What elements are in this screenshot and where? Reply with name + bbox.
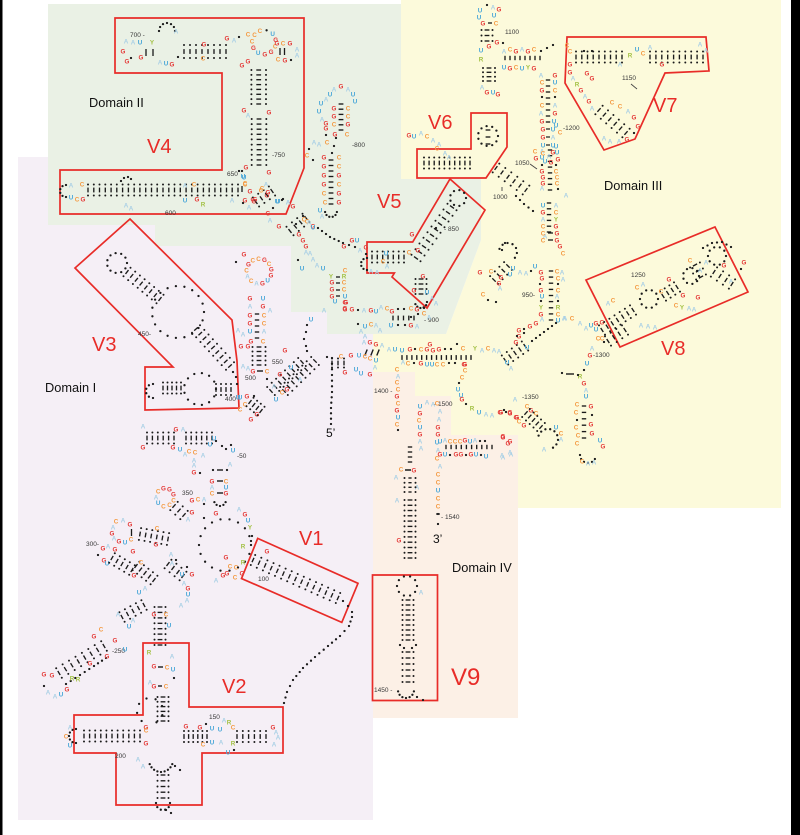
svg-text:C: C [481,291,486,298]
svg-text:G: G [681,292,686,299]
svg-text:C: C [541,223,546,230]
svg-text:Domain II: Domain II [89,95,144,110]
svg-text:C: C [674,302,679,309]
svg-text:G: G [161,486,166,493]
svg-text:C: C [574,424,579,431]
svg-text:G: G [195,196,200,203]
svg-text:C: C [64,733,69,740]
svg-text:A: A [230,197,235,204]
svg-text:U: U [69,194,74,201]
svg-text:G: G [141,444,146,451]
svg-text:G: G [251,45,256,52]
svg-text:G: G [190,571,195,578]
svg-text:U: U [300,265,305,272]
svg-text:A: A [618,61,623,68]
svg-text:G: G [154,541,159,548]
svg-text:G: G [246,343,251,350]
svg-text:G: G [551,149,556,156]
svg-text:A: A [131,617,136,624]
svg-text:G: G [343,369,348,376]
svg-text:G: G [337,172,342,179]
svg-text:A: A [362,307,367,314]
svg-text:U: U [241,173,246,180]
svg-text:A: A [559,436,564,443]
svg-text:400: 400 [225,396,236,403]
svg-text:A: A [201,452,206,459]
svg-text:A: A [539,110,544,117]
svg-text:G: G [322,163,327,170]
svg-text:A: A [69,182,74,189]
svg-text:A: A [387,346,392,353]
svg-text:C: C [407,249,412,256]
svg-text:U: U [351,91,356,98]
svg-text:C: C [323,199,328,206]
svg-text:A: A [419,445,424,452]
svg-text:A: A [502,48,507,55]
svg-text:G: G [522,422,527,429]
svg-text:A: A [648,44,653,51]
svg-text:U: U [256,50,261,57]
svg-text:U: U [333,298,338,305]
svg-text:G: G [224,490,229,497]
svg-text:A: A [692,306,697,313]
svg-text:G: G [368,371,373,378]
svg-text:G: G [349,352,354,359]
svg-text:C: C [565,42,570,49]
svg-text:A: A [447,154,452,161]
svg-text:A: A [116,611,121,618]
svg-text:U: U [289,364,294,371]
svg-text:A: A [578,320,583,327]
svg-text:A: A [562,315,567,322]
svg-text:U: U [393,346,398,353]
svg-text:G: G [184,723,189,730]
svg-text:A: A [641,281,646,288]
svg-text:A: A [241,331,246,338]
svg-text:-750: -750 [272,152,285,159]
svg-text:A: A [183,451,188,458]
svg-text:U: U [585,360,590,367]
svg-text:G: G [418,431,423,438]
svg-text:V2: V2 [222,676,246,698]
svg-text:G: G [265,548,270,555]
svg-text:Domain III: Domain III [604,178,662,193]
svg-text:C: C [342,279,347,286]
svg-text:G: G [266,189,271,196]
svg-text:C: C [250,38,255,45]
svg-text:A: A [174,28,179,35]
svg-text:G: G [460,396,465,403]
svg-text:U: U [533,263,538,270]
svg-text:G: G [132,572,137,579]
svg-text:C: C [346,105,351,112]
svg-text:G: G [42,671,47,678]
svg-text:G: G [742,259,747,266]
svg-text:A: A [639,322,644,329]
svg-text:C: C [570,315,575,322]
svg-text:A: A [53,693,58,700]
svg-text:C: C [234,564,239,571]
svg-text:C: C [558,129,563,136]
svg-text:A: A [272,383,277,390]
svg-text:C: C [332,121,337,128]
svg-text:G: G [541,134,546,141]
svg-text:A: A [228,461,233,468]
svg-text:G: G [50,672,55,679]
svg-text:C: C [610,99,615,106]
svg-text:600: 600 [165,210,176,217]
svg-text:U: U [164,60,169,67]
svg-text:150: 150 [209,714,220,721]
svg-text:U: U [167,622,172,629]
svg-text:G: G [485,89,490,96]
svg-text:A: A [540,316,545,323]
svg-text:U: U [556,317,561,324]
svg-text:C: C [489,268,494,275]
svg-text:C: C [99,626,104,633]
svg-text:500: 500 [245,375,256,382]
svg-text:G: G [418,410,423,417]
svg-text:U: U [183,197,188,204]
svg-text:R: R [70,675,75,682]
svg-text:C: C [540,102,545,109]
svg-text:U: U [520,65,525,72]
svg-text:C: C [305,152,310,159]
svg-text:G: G [224,554,229,561]
svg-text:V9: V9 [451,664,480,691]
svg-text:G: G [88,660,93,667]
svg-text:G: G [696,294,701,301]
svg-text:A: A [111,524,116,531]
svg-text:U: U [474,451,479,458]
svg-text:Domain I: Domain I [45,380,96,395]
svg-text:G: G [459,451,464,458]
svg-text:C: C [435,145,440,152]
svg-text:U: U [594,326,599,333]
svg-text:C: C [252,32,257,39]
svg-text:A: A [438,408,443,415]
svg-text:C: C [165,664,170,671]
svg-text:G: G [275,40,280,47]
svg-text:G: G [152,683,157,690]
svg-text:C: C [553,87,558,94]
svg-text:-800: -800 [352,142,365,149]
svg-text:A: A [358,247,363,254]
svg-text:C: C [342,286,347,293]
svg-text:U: U [248,328,253,335]
svg-text:A: A [106,543,111,550]
svg-text:U: U [477,409,482,416]
svg-text:G: G [541,209,546,216]
svg-text:U: U [127,623,132,630]
svg-text:G: G [117,538,122,545]
svg-text:G: G [534,320,539,327]
svg-text:G: G [110,530,115,537]
svg-text:A: A [646,323,651,330]
svg-text:C: C [80,181,85,188]
svg-text:V7: V7 [653,95,677,117]
svg-text:300-: 300- [86,541,99,548]
svg-text:A: A [592,459,597,466]
svg-text:A: A [192,462,197,469]
svg-text:G: G [261,303,266,310]
svg-text:A: A [498,285,503,292]
svg-text:G: G [245,393,250,400]
svg-text:C: C [337,181,342,188]
svg-text:A: A [434,300,439,307]
svg-text:G: G [190,497,195,504]
svg-text:U: U [541,142,546,149]
svg-text:G: G [660,61,665,68]
svg-text:R: R [628,52,633,59]
svg-text:G: G [481,20,486,27]
svg-text:G: G [431,347,436,354]
svg-text:C: C [192,181,197,188]
svg-text:G: G [174,426,179,433]
svg-text:G: G [202,41,207,48]
svg-text:U: U [384,250,389,257]
svg-text:A: A [315,262,320,269]
svg-text:U: U [275,198,280,205]
svg-text:1100: 1100 [505,29,519,36]
svg-text:A: A [362,339,367,346]
svg-text:U: U [123,539,128,546]
svg-text:450-: 450- [138,331,151,338]
svg-text:U: U [412,133,417,140]
svg-text:G: G [496,91,501,98]
svg-text:G: G [395,393,400,400]
svg-text:C: C [238,406,243,413]
svg-text:100: 100 [258,576,269,583]
svg-text:A: A [395,497,400,504]
svg-text:A: A [473,437,478,444]
svg-text:C: C [441,361,446,368]
svg-text:G: G [390,308,395,315]
svg-text:U: U [359,370,364,377]
svg-text:A: A [179,602,184,609]
svg-text:G: G [625,136,630,143]
svg-text:A: A [237,506,242,513]
svg-text:C: C [435,361,440,368]
svg-text:G: G [364,244,369,251]
svg-text:U: U [484,453,489,460]
svg-text:A: A [304,249,309,256]
svg-text:G: G [283,57,288,64]
svg-text:G: G [556,156,561,163]
svg-text:C: C [276,56,281,63]
svg-text:U: U [374,357,379,364]
svg-text:C: C [75,196,80,203]
svg-text:G: G [248,295,253,302]
svg-text:C: C [193,449,198,456]
svg-text:C: C [395,379,400,386]
svg-text:G: G [590,430,595,437]
svg-text:G: G [192,469,197,476]
svg-text:R: R [76,676,81,683]
svg-text:C: C [395,366,400,373]
svg-text:G: G [65,686,70,693]
svg-text:G: G [419,360,424,367]
svg-text:A: A [254,281,259,288]
svg-text:A: A [202,496,207,503]
svg-text:U: U [478,7,483,14]
svg-text:A: A [214,577,219,584]
svg-text:G: G [374,341,379,348]
svg-text:C: C [417,417,422,424]
svg-text:R: R [231,740,236,747]
svg-text:U: U [551,142,556,149]
svg-text:C: C [345,131,350,138]
svg-text:U: U [554,122,559,129]
svg-text:G: G [246,262,251,269]
svg-text:G: G [248,188,253,195]
svg-text:G: G [248,312,253,319]
svg-text:A: A [248,303,253,310]
svg-text:U: U [238,394,243,401]
svg-text:G: G [397,537,402,544]
svg-text:G: G [339,83,344,90]
svg-text:5’: 5’ [326,426,335,440]
svg-text:A: A [438,463,443,470]
svg-text:R: R [470,405,475,412]
svg-text:A: A [484,411,489,418]
svg-text:A: A [158,59,163,66]
svg-text:A: A [542,446,547,453]
svg-text:- 850: - 850 [444,226,459,233]
svg-text:1450 -: 1450 - [374,687,392,694]
svg-text:G: G [277,223,282,230]
svg-text:G: G [532,65,537,72]
svg-text:C: C [337,163,342,170]
svg-text:C: C [436,503,441,510]
svg-text:1050: 1050 [515,160,530,167]
svg-text:-1300: -1300 [593,352,610,359]
svg-text:G: G [501,433,506,440]
svg-text:A: A [131,39,136,46]
svg-text:G: G [540,275,545,282]
svg-text:Domain IV: Domain IV [452,560,512,575]
svg-text:A: A [555,293,560,300]
svg-text:G: G [330,279,335,286]
svg-text:G: G [246,58,251,65]
svg-text:C: C [171,498,176,505]
svg-text:G: G [121,48,126,55]
svg-text:G: G [421,273,426,280]
svg-text:C: C [251,258,256,265]
svg-text:A: A [295,52,300,59]
svg-text:A: A [298,376,303,383]
svg-text:A: A [540,185,545,192]
svg-text:C: C [659,288,664,295]
svg-text:U: U [396,414,401,421]
svg-text:G: G [214,510,219,517]
svg-text:A: A [268,217,273,224]
svg-text:A: A [415,323,420,330]
svg-text:G: G [601,443,606,450]
svg-text:G: G [240,62,245,69]
svg-text:A: A [276,734,281,741]
svg-text:U: U [492,12,497,19]
svg-text:U: U [400,347,405,354]
svg-text:G: G [267,169,272,176]
svg-text:V5: V5 [377,191,401,213]
svg-text:G: G [324,125,329,132]
svg-text:C: C [561,250,566,257]
svg-text:C: C [611,297,616,304]
svg-text:A: A [427,314,432,321]
svg-text:G: G [667,276,672,283]
svg-text:C: C [196,496,201,503]
svg-text:U: U [309,316,314,323]
svg-text:C: C [201,741,206,748]
svg-text:G: G [517,327,522,334]
svg-text:G: G [262,51,267,58]
svg-text:G: G [589,403,594,410]
svg-text:G: G [332,113,337,120]
svg-text:A: A [247,204,252,211]
svg-text:C: C [600,335,605,342]
svg-text:C: C [460,374,465,381]
svg-text:C: C [395,421,400,428]
svg-text:A: A [704,47,709,54]
svg-text:C: C [339,353,344,360]
svg-text:A: A [698,41,703,48]
svg-text:C: C [533,148,538,155]
svg-text:U: U [123,646,128,653]
svg-text:V6: V6 [428,112,452,134]
svg-text:A: A [268,307,273,314]
svg-text:G: G [495,39,500,46]
svg-text:A: A [418,438,423,445]
svg-text:-1350: -1350 [522,394,539,401]
svg-text:A: A [68,724,73,731]
svg-text:C: C [508,46,513,53]
svg-text:C: C [243,401,248,408]
svg-text:C: C [258,28,263,35]
svg-text:A: A [183,182,188,189]
svg-text:G: G [251,368,256,375]
svg-text:G: G [225,35,230,42]
svg-text:C: C [575,440,580,447]
svg-text:G: G [171,444,176,451]
svg-text:C: C [555,180,560,187]
svg-text:C: C [461,345,466,352]
svg-text:U: U [353,98,358,105]
svg-text:A: A [419,130,424,137]
svg-text:G: G [350,237,355,244]
svg-text:C: C [343,267,348,274]
svg-text:C: C [419,346,424,353]
svg-text:R: R [556,304,561,311]
svg-text:C: C [396,386,401,393]
svg-text:G: G [558,243,563,250]
svg-text:G: G [436,431,441,438]
svg-text:U: U [540,293,545,300]
svg-text:1000: 1000 [493,194,508,201]
svg-text:G: G [437,346,442,353]
svg-text:C: C [396,400,401,407]
svg-text:R: R [479,56,484,63]
svg-text:C: C [574,409,579,416]
svg-text:200: 200 [115,753,126,760]
svg-text:U: U [363,323,368,330]
svg-text:C: C [256,256,261,263]
svg-text:700 -: 700 - [130,32,145,39]
svg-text:A: A [219,739,224,746]
svg-text:U: U [246,517,251,524]
svg-text:A: A [317,141,322,148]
svg-text:C: C [262,320,267,327]
